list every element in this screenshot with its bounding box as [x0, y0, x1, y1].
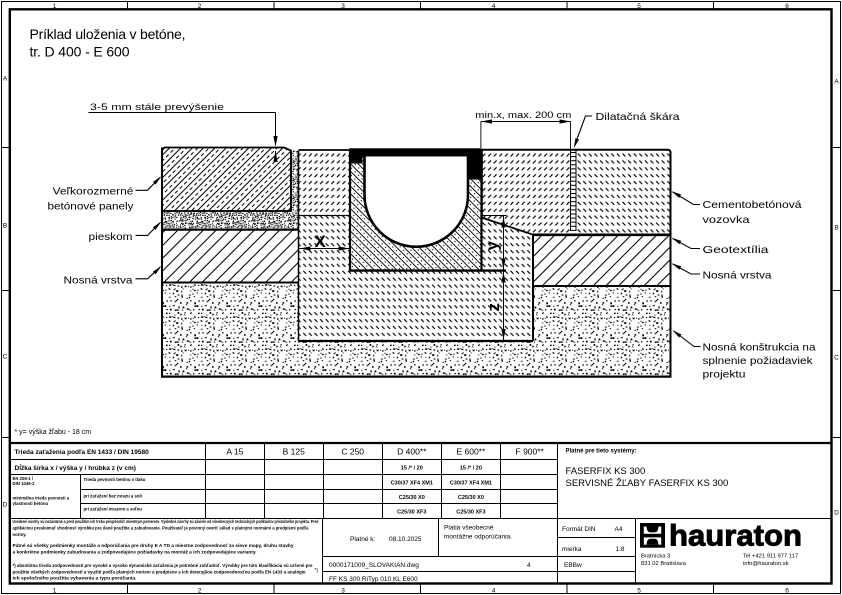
svg-text:pri zaťažení mrazom a soľou: pri zaťažení mrazom a soľou: [84, 507, 143, 512]
svg-text:minimálna trieda pevnosti a: minimálna trieda pevnosti a: [13, 496, 70, 501]
svg-text:A: A: [3, 76, 8, 83]
svg-text:Príklad uloženia v betóne,: Príklad uloženia v betóne,: [30, 26, 186, 42]
svg-text:C30/37 XF4 XM1: C30/37 XF4 XM1: [450, 481, 492, 487]
svg-text:2: 2: [198, 588, 202, 595]
svg-text:0000171009_SLOVAKIAN.dwg: 0000171009_SLOVAKIAN.dwg: [329, 562, 419, 569]
svg-text:D 400**: D 400**: [397, 447, 427, 457]
svg-text:08.10.2025: 08.10.2025: [389, 536, 422, 543]
svg-text:y: y: [483, 241, 502, 251]
svg-text:5: 5: [637, 588, 641, 595]
svg-text:3: 3: [341, 3, 345, 10]
svg-text:použitie všetkých zodpovednost: použitie všetkých zodpovedností a využit…: [13, 569, 307, 574]
svg-text:Nosná konštrukcia na: Nosná konštrukcia na: [703, 342, 816, 354]
svg-text:C: C: [3, 354, 8, 361]
svg-text:montážne odporúčania.: montážne odporúčania.: [444, 534, 512, 541]
svg-text:E 600**: E 600**: [456, 447, 486, 457]
svg-text:Nosná vrstva: Nosná vrstva: [64, 275, 133, 287]
svg-text:FASERFIX KS 300: FASERFIX KS 300: [566, 466, 646, 477]
svg-text:D: D: [834, 510, 839, 517]
svg-text:Platia všeobecné: Platia všeobecné: [444, 525, 494, 532]
svg-text:C: C: [834, 355, 839, 362]
svg-text:831 02 Bratislava: 831 02 Bratislava: [641, 561, 687, 567]
svg-text:1: 1: [53, 3, 57, 10]
svg-text:4: 4: [492, 3, 496, 10]
svg-text:pieskom: pieskom: [89, 231, 133, 243]
svg-text:B: B: [834, 225, 838, 232]
svg-text:3-5 mm stále prevýšenie: 3-5 mm stále prevýšenie: [90, 102, 224, 113]
svg-text:ich spoločného použitia vybave: ich spoločného použitia vybavenia a typu…: [13, 575, 137, 580]
svg-text:*) absolútna trieda zodpovedno: *) absolútna trieda zodpovednosti pre vy…: [13, 563, 314, 568]
svg-text:F 900**: F 900**: [516, 447, 545, 457]
svg-text:pri zaťažení bez mrazu a soli: pri zaťažení bez mrazu a soli: [84, 494, 142, 499]
svg-text:5: 5: [637, 3, 641, 10]
svg-text:Platné pre tieto systémy:: Platné pre tieto systémy:: [566, 449, 637, 455]
svg-text:normy.: normy.: [13, 532, 27, 537]
svg-text:Tel +421 911 977 117: Tel +421 911 977 117: [743, 554, 798, 560]
svg-text:aplikáciou preskúmať vhodnosť: aplikáciou preskúmať vhodnosť výrobku pr…: [13, 526, 310, 531]
svg-text:D: D: [3, 502, 8, 509]
svg-text:SERVISNÉ ŽĽABY FASERFIX KS 300: SERVISNÉ ŽĽABY FASERFIX KS 300: [566, 478, 729, 489]
svg-text:projektu: projektu: [703, 369, 746, 381]
svg-text:tr. D 400 - E 600: tr. D 400 - E 600: [30, 44, 130, 60]
svg-text:3: 3: [341, 588, 345, 595]
svg-text:info@hauraton.sk: info@hauraton.sk: [743, 561, 789, 567]
svg-text:Dilatačná škára: Dilatačná škára: [596, 111, 680, 123]
svg-text:mierka: mierka: [562, 546, 582, 553]
svg-text:C25/30 X0: C25/30 X0: [458, 495, 484, 501]
svg-text:Bratnícka 3: Bratnícka 3: [641, 554, 670, 560]
svg-text:z: z: [484, 303, 503, 312]
svg-text:Formát DIN: Formát DIN: [562, 526, 596, 533]
svg-text:Uvedené návrhy sú nezáväzné a: Uvedené návrhy sú nezáväzné a pred použi…: [13, 519, 319, 524]
svg-text:1: 1: [53, 588, 57, 595]
svg-text:Cementobetónová: Cementobetónová: [703, 199, 802, 211]
svg-text:splnenie požiadaviek: splnenie požiadaviek: [703, 355, 814, 367]
svg-text:Veľkorozmerné: Veľkorozmerné: [53, 186, 134, 198]
svg-text:6: 6: [785, 588, 789, 595]
svg-text:4: 4: [527, 562, 531, 569]
svg-text:A4: A4: [615, 526, 623, 533]
svg-text:B 125: B 125: [283, 447, 305, 457]
svg-text:4: 4: [492, 588, 496, 595]
svg-text:A 15: A 15: [226, 447, 243, 457]
svg-text:C25/30 XF3: C25/30 XF3: [456, 510, 485, 516]
svg-text:a konkrétne podmienky zabudova: a konkrétne podmienky zabudovania a zodp…: [13, 549, 257, 554]
svg-text:Platné k:: Platné k:: [350, 536, 375, 543]
svg-text:*): *): [315, 568, 319, 574]
svg-text:C30/37 XF4 XM1: C30/37 XF4 XM1: [391, 481, 433, 487]
svg-text:C25/30 XF3: C25/30 XF3: [397, 510, 426, 516]
svg-text:15 /* / 20: 15 /* / 20: [401, 466, 423, 472]
svg-text:* y= výška žľabu - 18 cm: * y= výška žľabu - 18 cm: [15, 429, 92, 436]
svg-text:EBBw: EBBw: [564, 562, 582, 569]
svg-text:6: 6: [785, 3, 789, 10]
svg-text:2: 2: [198, 3, 202, 10]
svg-text:Trieda zaťaženia podľa EN 1433: Trieda zaťaženia podľa EN 1433 / DIN 195…: [15, 449, 150, 456]
svg-text:Dĺžka šírka x / výška y / hrúb: Dĺžka šírka x / výška y / hrúbka z (v cm…: [15, 463, 136, 472]
svg-text:hauraton: hauraton: [669, 520, 802, 553]
svg-text:B: B: [3, 223, 7, 230]
svg-text:15 /* / 20: 15 /* / 20: [460, 466, 482, 472]
svg-text:vozovka: vozovka: [703, 214, 750, 226]
svg-text:Trieda pevnosti betónu v tlaku: Trieda pevnosti betónu v tlaku: [84, 477, 146, 482]
svg-text:A: A: [834, 79, 839, 86]
svg-text:Nosná vrstva: Nosná vrstva: [703, 270, 772, 282]
svg-text:Geotextília: Geotextília: [703, 244, 769, 256]
svg-text:DIN 1045-2: DIN 1045-2: [13, 481, 36, 486]
svg-text:vlastnosti betónu: vlastnosti betónu: [13, 501, 49, 506]
svg-text:betónové panely: betónové panely: [48, 201, 135, 213]
svg-text:C25/30 X0: C25/30 X0: [399, 495, 425, 501]
svg-text:1:8: 1:8: [616, 546, 625, 553]
svg-text:Pátné sú všetky podmienky mont: Pátné sú všetky podmienky montáže a odpo…: [13, 543, 295, 548]
svg-text:min.x, max. 200 cm: min.x, max. 200 cm: [475, 110, 571, 121]
svg-text:FF KS 300 RiTyp 010 KL E600: FF KS 300 RiTyp 010 KL E600: [329, 576, 418, 583]
svg-text:C 250: C 250: [341, 447, 364, 457]
